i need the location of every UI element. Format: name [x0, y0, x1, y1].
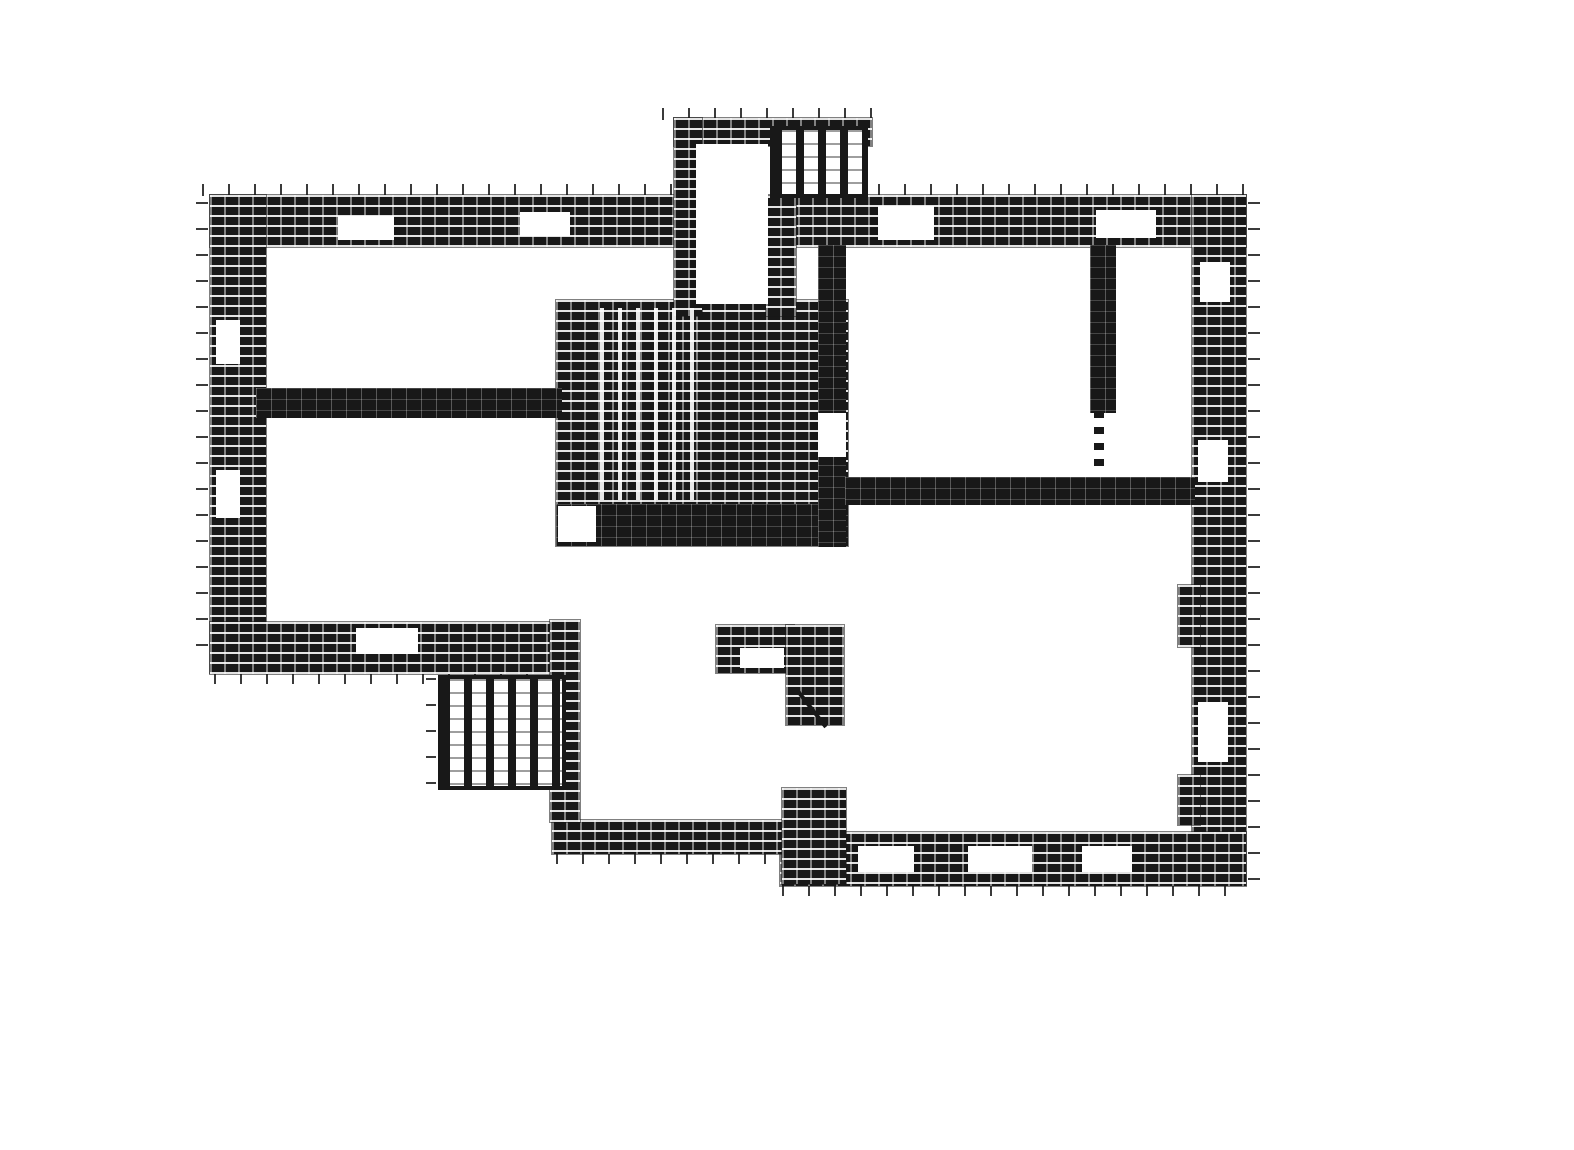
window-top-4 [1096, 210, 1156, 238]
window-east-1 [1200, 262, 1230, 302]
window-east-3 [1198, 702, 1228, 762]
wall-room-divider [818, 245, 846, 547]
roof-ladder-stair [770, 126, 868, 198]
floor-plan-scan [0, 0, 1574, 1150]
exterior-stair [438, 675, 566, 790]
window-left-2 [216, 470, 240, 518]
wall-core-bottom [556, 504, 848, 546]
wall-interior-left [256, 388, 562, 418]
window-top-3 [878, 206, 934, 240]
ticks-east-outer [1248, 202, 1260, 882]
door-narrow-room-dashed [1094, 411, 1104, 475]
wall-shaft-right [766, 196, 796, 316]
ticks-stair-left [426, 678, 436, 790]
window-east-2 [1198, 440, 1228, 482]
window-bottom-right-2 [968, 846, 1032, 872]
window-closet [740, 648, 784, 668]
window-top-2 [520, 212, 570, 236]
wall-east-pier-lower [1178, 775, 1200, 825]
window-bottom-left [356, 628, 418, 654]
core-landing [558, 506, 596, 542]
wall-junction-block [782, 788, 846, 884]
ticks-bottom-mid [556, 854, 798, 864]
window-bottom-right-3 [1082, 846, 1132, 872]
window-top-1 [338, 216, 394, 240]
wall-rooms-bottom [845, 477, 1195, 505]
door-room-divider [818, 413, 846, 457]
wall-east-pier-upper [1178, 585, 1200, 647]
window-bottom-right-1 [858, 846, 914, 872]
wall-bottom-mid [552, 820, 802, 854]
ticks-left-outer [196, 202, 208, 668]
gap-above-divider [798, 250, 816, 298]
window-left-1 [216, 320, 240, 364]
wall-left [210, 195, 266, 673]
wall-narrow-room-left [1090, 245, 1116, 413]
core-stair-treads [600, 308, 704, 500]
ticks-bottom-right [782, 886, 1246, 896]
shaft-opening [696, 144, 768, 304]
